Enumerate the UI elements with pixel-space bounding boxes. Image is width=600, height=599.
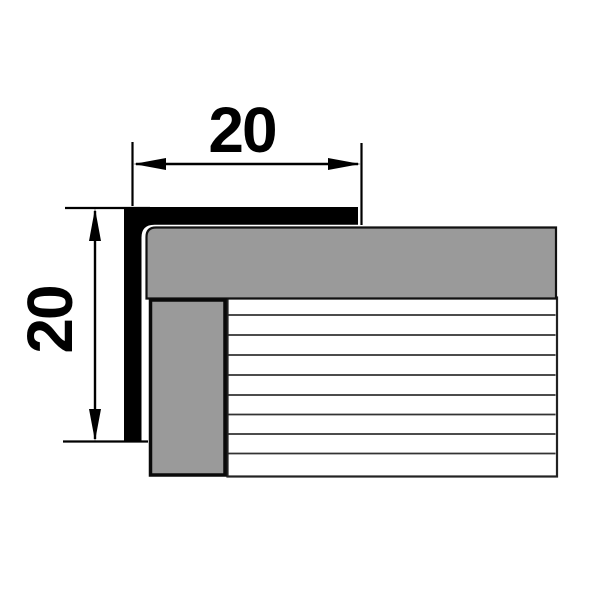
wall-panel — [151, 300, 226, 475]
profile-diagram: 20 20 — [0, 0, 600, 599]
dimension-label-left: 20 — [14, 286, 86, 353]
laminate-board — [228, 298, 558, 477]
diagram-canvas: 20 20 — [0, 0, 600, 599]
dimension-label-top: 20 — [208, 94, 275, 166]
panel-top — [147, 228, 557, 299]
